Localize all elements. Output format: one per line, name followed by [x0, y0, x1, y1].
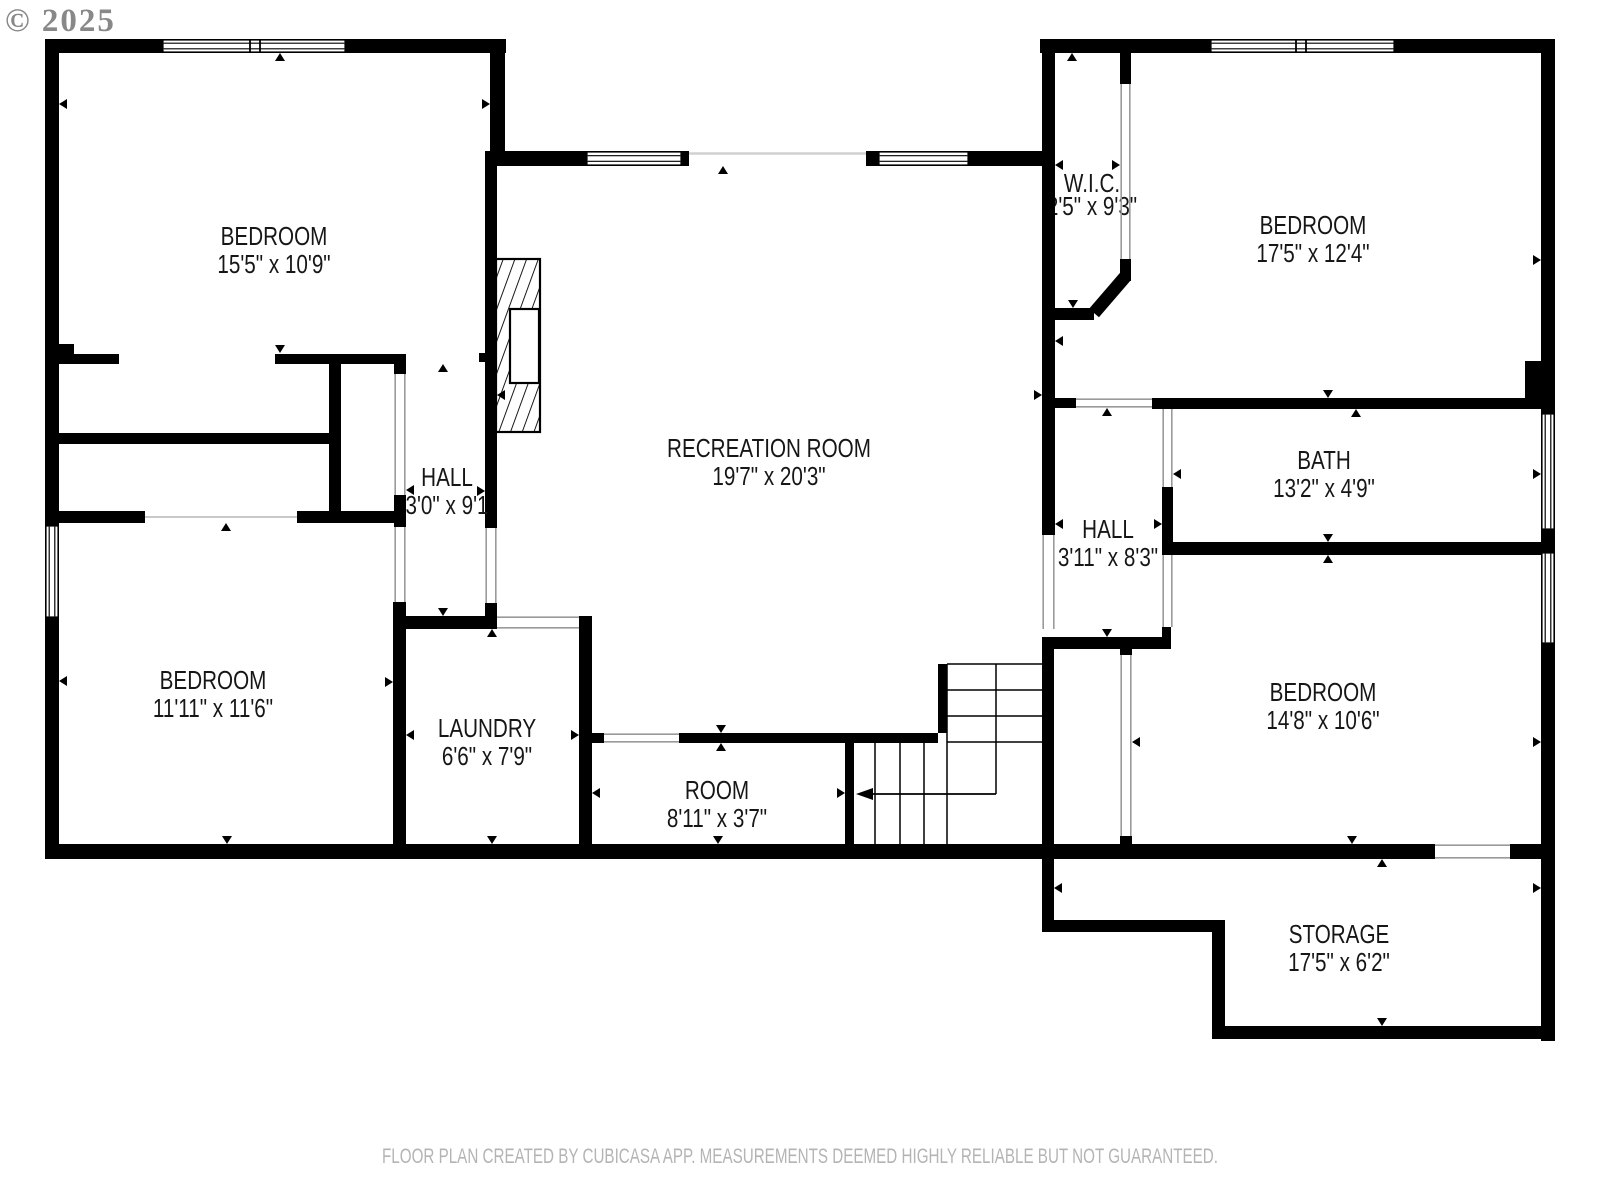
- svg-text:HALL: HALL: [421, 464, 473, 492]
- svg-text:8'11" x 3'7": 8'11" x 3'7": [667, 805, 767, 833]
- svg-text:11'11" x 11'6": 11'11" x 11'6": [153, 695, 273, 723]
- svg-text:6'6" x 7'9": 6'6" x 7'9": [442, 743, 532, 771]
- svg-text:3'11" x 8'3": 3'11" x 8'3": [1058, 544, 1158, 572]
- svg-text:15'5" x 10'9": 15'5" x 10'9": [217, 251, 330, 279]
- svg-text:19'7" x 20'3": 19'7" x 20'3": [712, 463, 825, 491]
- svg-text:13'2" x 4'9": 13'2" x 4'9": [1273, 475, 1375, 503]
- svg-text:14'8" x 10'6": 14'8" x 10'6": [1266, 707, 1379, 735]
- svg-text:17'5" x 12'4": 17'5" x 12'4": [1256, 240, 1369, 268]
- svg-text:BATH: BATH: [1297, 447, 1351, 475]
- svg-text:2'5" x 9'3": 2'5" x 9'3": [1047, 193, 1137, 221]
- svg-text:HALL: HALL: [1082, 516, 1134, 544]
- svg-text:© 2025: © 2025: [5, 3, 116, 39]
- svg-text:FLOOR PLAN CREATED BY CUBICASA: FLOOR PLAN CREATED BY CUBICASA APP. MEAS…: [382, 1145, 1218, 1168]
- svg-text:BEDROOM: BEDROOM: [1260, 212, 1367, 240]
- svg-text:RECREATION ROOM: RECREATION ROOM: [667, 435, 871, 463]
- svg-text:BEDROOM: BEDROOM: [221, 223, 328, 251]
- svg-text:LAUNDRY: LAUNDRY: [438, 715, 536, 743]
- svg-text:3'0" x 9'1: 3'0" x 9'1: [406, 492, 489, 520]
- svg-text:ROOM: ROOM: [685, 777, 749, 805]
- svg-text:BEDROOM: BEDROOM: [1270, 679, 1377, 707]
- svg-text:STORAGE: STORAGE: [1289, 921, 1390, 949]
- svg-text:BEDROOM: BEDROOM: [160, 667, 267, 695]
- svg-text:17'5" x 6'2": 17'5" x 6'2": [1288, 949, 1390, 977]
